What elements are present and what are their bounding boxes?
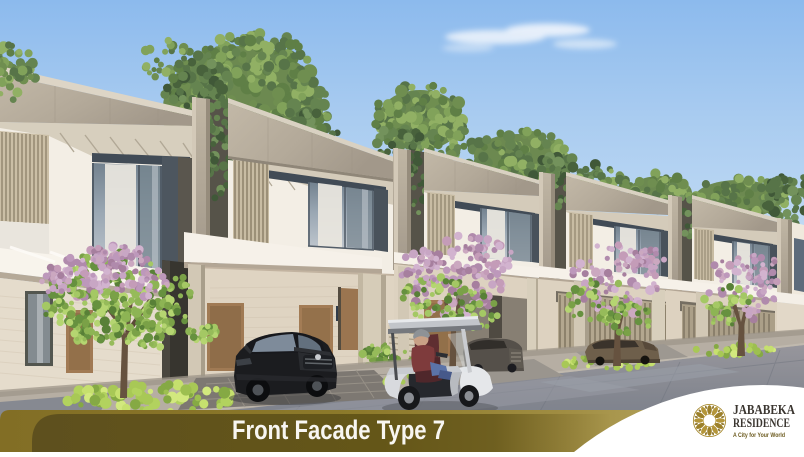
svg-text:Front Facade Type 7: Front Facade Type 7 <box>232 415 445 445</box>
svg-text:RESIDENCE: RESIDENCE <box>733 416 790 430</box>
svg-text:A City for Your World: A City for Your World <box>733 432 785 439</box>
